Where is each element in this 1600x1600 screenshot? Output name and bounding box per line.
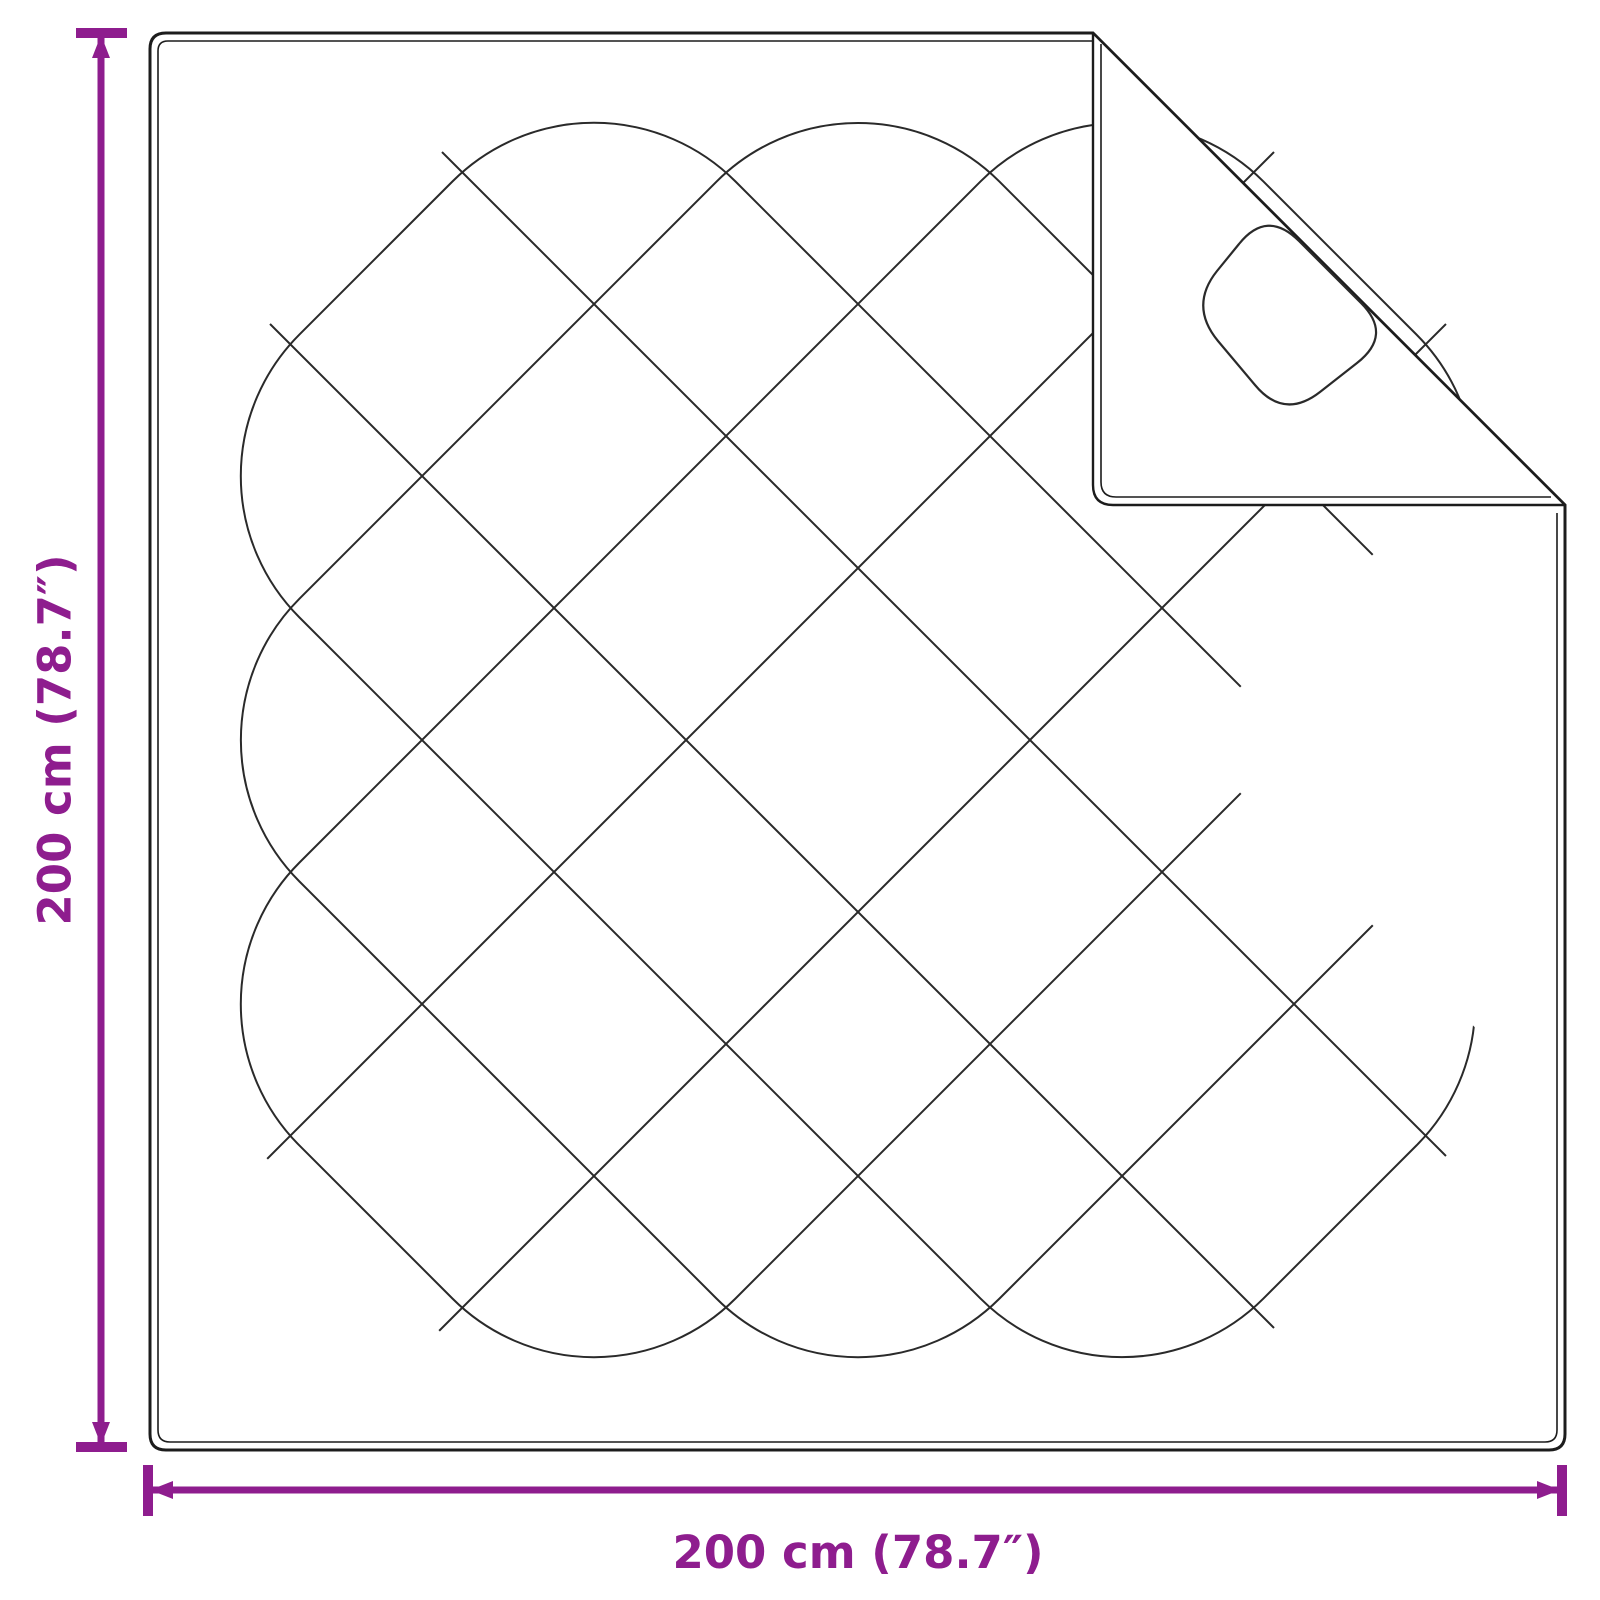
vertical-dimension-line: [76, 33, 127, 1447]
blanket-outline: [150, 33, 1565, 1450]
arrow-up-icon: [92, 35, 110, 58]
fold-flap: [1093, 33, 1565, 505]
height-dimension-label: 200 cm (78.7″): [29, 554, 82, 925]
arrow-right-icon: [1537, 1481, 1560, 1499]
horizontal-dimension-line: [148, 1465, 1562, 1516]
width-dimension-label: 200 cm (78.7″): [672, 1526, 1043, 1579]
arrow-down-icon: [92, 1422, 110, 1445]
dimension-diagram: 200 cm (78.7″) 200 cm (78.7″): [0, 0, 1600, 1600]
arrow-left-icon: [150, 1481, 173, 1499]
diagram-canvas: 200 cm (78.7″) 200 cm (78.7″): [0, 0, 1600, 1600]
